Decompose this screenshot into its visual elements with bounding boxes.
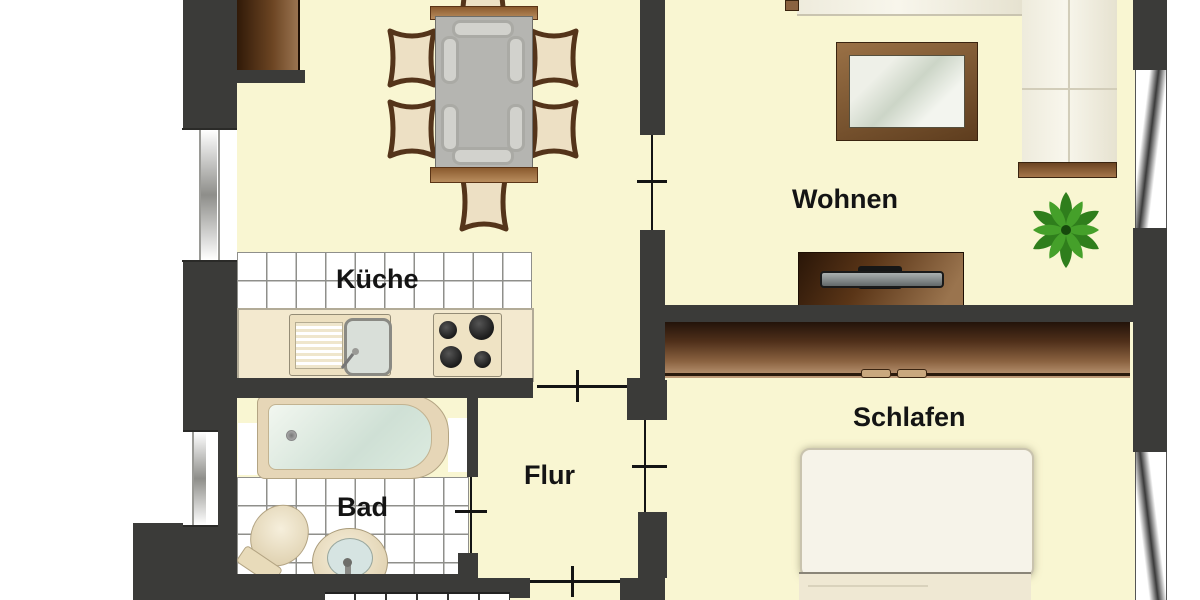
door-tick (455, 510, 487, 513)
drain-icon (286, 430, 297, 441)
adjacent-room-tiles (325, 592, 510, 600)
sofa (797, 0, 1022, 16)
window-glass (1135, 70, 1167, 228)
wall (237, 592, 325, 600)
room-label-wohnen: Wohnen (792, 184, 898, 215)
faucet-icon (343, 558, 352, 567)
room-label-flur: Flur (524, 460, 575, 491)
wardrobe (657, 322, 1130, 378)
room-label-bad: Bad (337, 492, 388, 523)
sink-drainer (295, 322, 343, 369)
sofa-side (785, 0, 799, 11)
faucet-icon (352, 348, 359, 355)
table-placemat (441, 36, 459, 84)
door-tick (576, 370, 579, 402)
wall (183, 0, 237, 128)
wall (627, 380, 667, 420)
wall (620, 578, 665, 600)
wall (458, 553, 478, 580)
door-opening (530, 580, 620, 583)
coffee-table-glass (849, 55, 965, 128)
bed-fold (808, 585, 928, 587)
wardrobe-handle (897, 369, 927, 378)
stove-burner (440, 346, 462, 368)
hall-cabinet-base (233, 70, 305, 83)
window-glass (194, 432, 206, 525)
sofa-seam (1068, 0, 1070, 162)
wardrobe-edge (657, 373, 1130, 376)
wall (640, 0, 665, 135)
room-label-schlafen: Schlafen (853, 402, 966, 433)
wall (237, 378, 533, 398)
wall (652, 305, 1133, 322)
tub-ledge (448, 418, 467, 472)
table-placemat (452, 147, 514, 165)
tub-ledge (238, 423, 257, 475)
chair-icon (529, 99, 579, 159)
door-opening (537, 385, 627, 388)
dining-table-end (430, 167, 538, 183)
window (1135, 70, 1165, 228)
wall (218, 430, 237, 523)
stove-burner (439, 321, 457, 339)
door-opening (470, 477, 472, 553)
wall (638, 512, 667, 578)
table-placemat (441, 104, 459, 152)
chair-icon (387, 28, 437, 88)
chair-icon (387, 99, 437, 159)
tv-soundbar (820, 271, 944, 288)
chair-icon (529, 28, 579, 88)
window-frame (218, 130, 220, 260)
window (182, 128, 237, 262)
wall (467, 393, 478, 477)
door-tick (571, 566, 574, 597)
stove-burner (474, 351, 491, 368)
door-tick (637, 180, 667, 183)
wardrobe-handle (861, 369, 891, 378)
wall (1133, 0, 1167, 70)
sofa-base (1018, 162, 1117, 178)
wall (183, 574, 478, 594)
wall (1133, 228, 1167, 452)
sofa-seam (1022, 88, 1117, 90)
table-placemat (507, 36, 525, 84)
plant-icon (1024, 188, 1108, 272)
floor-plan: Wohnen Küche Schlafen Flur Bad (0, 0, 1200, 600)
window-glass (1135, 452, 1167, 600)
wall (183, 258, 237, 430)
door-tick (632, 465, 667, 468)
stove-burner (469, 315, 494, 340)
table-placemat (452, 20, 514, 38)
bed (800, 448, 1034, 578)
window (1135, 452, 1165, 600)
hall-cabinet (233, 0, 300, 70)
window (183, 430, 218, 527)
room-label-kueche: Küche (336, 264, 419, 295)
kitchen-sink-bowl (344, 318, 392, 376)
window-frame (192, 432, 194, 525)
table-placemat (507, 104, 525, 152)
window-glass (201, 130, 217, 260)
